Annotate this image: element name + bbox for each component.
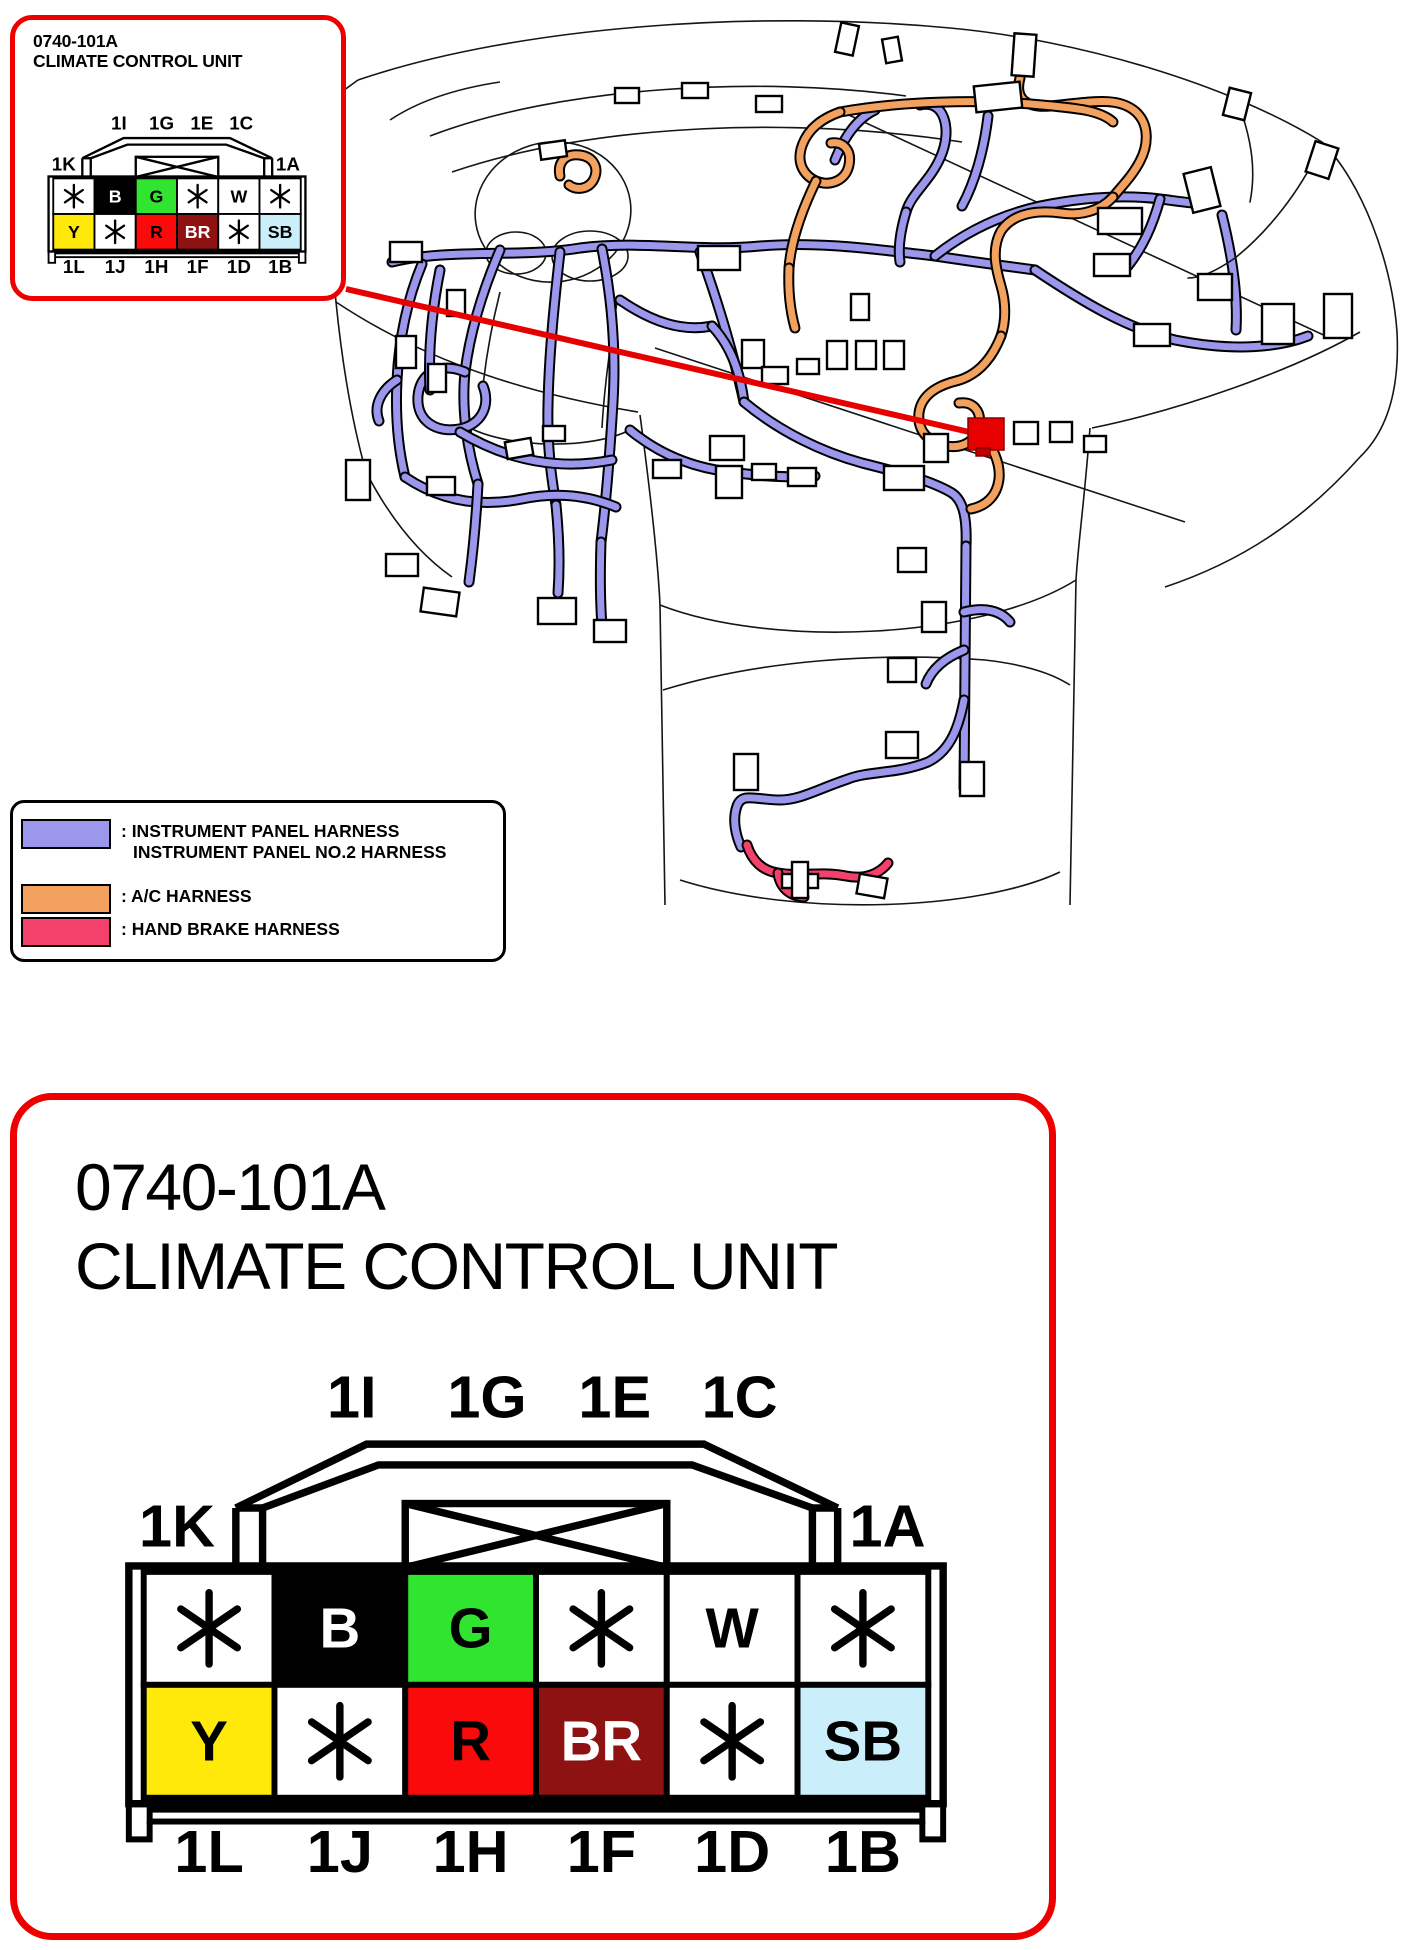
callout-title: CLIMATE CONTROL UNIT xyxy=(33,51,242,71)
legend-swatch-instrument-panel-harness xyxy=(21,819,111,849)
connector-pinout-small: BGWYRBRSB1I1G1E1C1L1J1H1F1D1B1K1A xyxy=(27,108,327,275)
svg-text:B: B xyxy=(319,1597,360,1660)
svg-text:1G: 1G xyxy=(447,1363,526,1430)
svg-text:Y: Y xyxy=(68,222,80,242)
instrument-panel-harness-wires xyxy=(377,104,1308,847)
svg-text:1E: 1E xyxy=(578,1363,651,1430)
svg-text:1I: 1I xyxy=(327,1363,377,1430)
svg-text:Y: Y xyxy=(190,1710,228,1773)
svg-text:1L: 1L xyxy=(63,256,85,275)
svg-text:1C: 1C xyxy=(229,113,253,134)
legend-label-instrument-panel-harness: : INSTRUMENT PANEL HARNESS xyxy=(121,821,446,842)
svg-text:1D: 1D xyxy=(694,1818,770,1878)
svg-text:1K: 1K xyxy=(52,153,76,174)
legend-swatch-ac-harness xyxy=(21,884,111,914)
svg-text:SB: SB xyxy=(268,222,293,242)
svg-text:B: B xyxy=(109,186,122,206)
svg-text:R: R xyxy=(450,1710,491,1773)
detail-box: 0740-101A CLIMATE CONTROL UNIT BGWYRBRSB… xyxy=(10,1093,1056,1940)
svg-text:W: W xyxy=(230,186,247,206)
svg-text:1H: 1H xyxy=(433,1818,509,1878)
detail-code: 0740-101A xyxy=(75,1148,837,1227)
svg-text:1L: 1L xyxy=(174,1818,243,1878)
svg-text:W: W xyxy=(705,1597,759,1660)
connector-location-marker xyxy=(968,418,1004,450)
svg-text:1G: 1G xyxy=(149,113,174,134)
svg-text:1I: 1I xyxy=(111,113,127,134)
svg-text:SB: SB xyxy=(824,1710,902,1773)
svg-text:1F: 1F xyxy=(187,256,209,275)
legend-box: : INSTRUMENT PANEL HARNESS INSTRUMENT PA… xyxy=(10,800,506,962)
svg-text:BR: BR xyxy=(561,1710,643,1773)
svg-text:R: R xyxy=(150,222,163,242)
legend-swatch-hand-brake-harness xyxy=(21,917,111,947)
svg-text:G: G xyxy=(449,1597,493,1660)
svg-text:BR: BR xyxy=(185,222,211,242)
connector-pinout-large: BGWYRBRSB1I1G1E1C1L1J1H1F1D1B1K1A xyxy=(60,1349,1012,1878)
legend-label-hand-brake-harness: : HAND BRAKE HARNESS xyxy=(121,919,340,940)
svg-text:1J: 1J xyxy=(105,256,126,275)
legend-label-instrument-panel-no2-harness: INSTRUMENT PANEL NO.2 HARNESS xyxy=(133,842,446,863)
svg-text:1K: 1K xyxy=(139,1493,215,1560)
svg-text:G: G xyxy=(149,186,163,206)
svg-text:1J: 1J xyxy=(307,1818,373,1878)
callout-code: 0740-101A xyxy=(33,31,242,51)
svg-text:1D: 1D xyxy=(227,256,251,275)
svg-text:1E: 1E xyxy=(190,113,213,134)
callout-box: 0740-101A CLIMATE CONTROL UNIT BGWYRBRSB… xyxy=(10,15,346,301)
svg-text:1F: 1F xyxy=(567,1818,636,1878)
svg-text:1B: 1B xyxy=(268,256,292,275)
legend-label-ac-harness: : A/C HARNESS xyxy=(121,886,252,907)
svg-text:1A: 1A xyxy=(276,153,300,174)
svg-text:1C: 1C xyxy=(702,1363,778,1430)
svg-text:1A: 1A xyxy=(850,1493,926,1560)
detail-title: CLIMATE CONTROL UNIT xyxy=(75,1227,837,1306)
svg-text:1B: 1B xyxy=(825,1818,901,1878)
svg-text:1H: 1H xyxy=(144,256,168,275)
